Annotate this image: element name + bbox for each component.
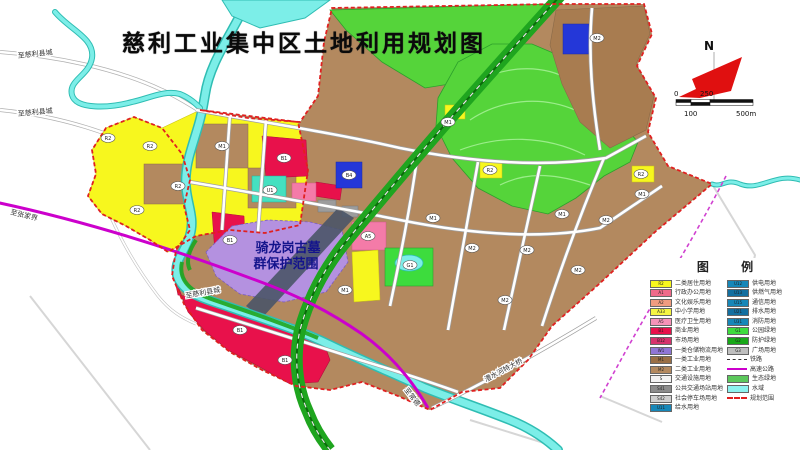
legend-item-left-0: R2二类居住用地: [650, 280, 723, 287]
legend-label: 通信用地: [752, 300, 776, 306]
legend-item-right-10: 生态绿地: [727, 376, 800, 383]
legend-item-left-9: M2二类工业用地: [650, 366, 723, 373]
legend-label: 排水用地: [752, 309, 776, 315]
legend-label: 生态绿地: [752, 376, 776, 382]
legend-item-right-8: 铁路: [727, 357, 800, 364]
parcel-code: M2: [501, 298, 509, 304]
legend-item-left-10: S交通设施用地: [650, 376, 723, 383]
legend-item-right-12: 规划范围: [727, 395, 800, 402]
legend-item-left-11: S41公共交通场站用地: [650, 386, 723, 393]
parcel-code: B1: [281, 156, 288, 162]
parcel-code: M1: [638, 192, 646, 198]
legend-item-left-6: B12市场用地: [650, 338, 723, 345]
legend-item-right-5: G1公园绿地: [727, 328, 800, 335]
legend-swatch: [727, 359, 747, 362]
legend-swatch: B12: [650, 337, 672, 345]
legend-item-right-3: U21排水用地: [727, 309, 800, 316]
legend-swatch: U12: [727, 280, 749, 288]
legend-swatch: [727, 375, 749, 383]
legend-swatch: U11: [650, 404, 672, 412]
legend-item-left-12: S42社会停车场用地: [650, 395, 723, 402]
legend-label: 社会停车场用地: [675, 396, 717, 402]
legend-item-right-4: U31消防用地: [727, 318, 800, 325]
legend-item-left-3: A33中小学用地: [650, 309, 723, 316]
legend-swatch: [727, 385, 749, 393]
legend-label: 交通设施用地: [675, 376, 711, 382]
legend-swatch: S42: [650, 395, 672, 403]
legend-label: 铁路: [750, 357, 762, 363]
legend-swatch: A33: [650, 308, 672, 316]
legend-title: 图 例: [650, 258, 800, 275]
parcel-code: R2: [487, 168, 494, 174]
legend-label: 商业用地: [675, 328, 699, 334]
legend-item-left-7: W1一类仓储物流用地: [650, 347, 723, 354]
legend-swatch: A5: [650, 318, 672, 326]
legend-column-left: R2二类居住用地A1行政办公用地A2文化娱乐用地A33中小学用地A5医疗卫生用地…: [650, 280, 723, 412]
parcel-code: M1: [558, 212, 566, 218]
parcel-code: M2: [593, 36, 601, 42]
parcel-code: M2: [523, 248, 531, 254]
legend-column-right: U12供电用地U13供燃气用地U15通信用地U21排水用地U31消防用地G1公园…: [727, 280, 800, 412]
legend-label: 公共交通场站用地: [675, 386, 723, 392]
legend-label: 供燃气用地: [752, 290, 782, 296]
legend-item-left-2: A2文化娱乐用地: [650, 299, 723, 306]
legend-panel: 图 例 R2二类居住用地A1行政办公用地A2文化娱乐用地A33中小学用地A5医疗…: [650, 258, 800, 412]
legend-item-left-8: M1一类工业用地: [650, 357, 723, 364]
legend-item-left-5: B1商业用地: [650, 328, 723, 335]
legend-label: 二类工业用地: [675, 367, 711, 373]
legend-swatch: S41: [650, 385, 672, 393]
protection-label-line2: 群保护范围: [253, 256, 318, 272]
protection-label-line1: 骑龙岗古墓: [255, 240, 321, 256]
legend-label: 广场用地: [752, 348, 776, 354]
legend-swatch: B1: [650, 327, 672, 335]
legend-swatch: G2: [727, 337, 749, 345]
legend-label: 市场用地: [675, 338, 699, 344]
parcel-code: U1: [267, 188, 274, 194]
legend-item-right-1: U13供燃气用地: [727, 290, 800, 297]
parcel-code: M1: [444, 120, 452, 126]
scale-100: 100: [684, 110, 697, 118]
parcel-code: B1: [282, 358, 289, 364]
legend-label: 医疗卫生用地: [675, 319, 711, 325]
legend-label: 规划范围: [750, 396, 774, 402]
parcel-code: M1: [341, 288, 349, 294]
legend-swatch: U31: [727, 318, 749, 326]
parcel-code: R2: [147, 144, 154, 150]
legend-item-right-2: U15通信用地: [727, 299, 800, 306]
legend-label: 防护绿地: [752, 338, 776, 344]
legend-item-right-9: 高速公路: [727, 366, 800, 373]
legend-label: 一类仓储物流用地: [675, 348, 723, 354]
parcel-code: R2: [175, 184, 182, 190]
legend-label: 公园绿地: [752, 328, 776, 334]
legend-label: 中小学用地: [675, 309, 705, 315]
parcel-code: M1: [218, 144, 226, 150]
legend-swatch: R2: [650, 280, 672, 288]
parcel-code: R2: [638, 172, 645, 178]
legend-item-right-11: 水域: [727, 386, 800, 393]
parcel-code: R2: [134, 208, 141, 214]
parcel-code: M2: [468, 246, 476, 252]
legend-item-left-13: U11给水用地: [650, 405, 723, 412]
parcel-code: B4: [346, 173, 353, 179]
page-title: 慈利工业集中区土地利用规划图: [122, 24, 522, 58]
legend-swatch: [727, 397, 747, 401]
north-label: N: [704, 39, 714, 53]
parcel-code: G1: [406, 263, 413, 269]
parcel-code: A5: [365, 234, 372, 240]
legend-swatch: S: [650, 375, 672, 383]
legend-swatch: A2: [650, 299, 672, 307]
legend-label: 水域: [752, 386, 764, 392]
legend-swatch: U13: [727, 289, 749, 297]
legend-swatch: [727, 368, 747, 372]
legend-swatch: G3: [727, 347, 749, 355]
legend-label: 行政办公用地: [675, 290, 711, 296]
legend-label: 文化娱乐用地: [675, 300, 711, 306]
planning-map-page: R2R2R2M1R2U1B1B1B4A5G1M1M2M2M1M2M1M2M1R2…: [0, 0, 800, 450]
legend-item-right-6: G2防护绿地: [727, 338, 800, 345]
legend-label: 消防用地: [752, 319, 776, 325]
legend-label: 二类居住用地: [675, 281, 711, 287]
scale-250: 250: [700, 90, 713, 98]
scale-0: 0: [674, 90, 678, 98]
legend-label: 一类工业用地: [675, 357, 711, 363]
parcel-code: M2: [574, 268, 582, 274]
parcel-code: B1: [237, 328, 244, 334]
legend-label: 给水用地: [675, 405, 699, 411]
parcel-code: R2: [105, 136, 112, 142]
legend-item-left-1: A1行政办公用地: [650, 290, 723, 297]
legend-label: 高速公路: [750, 367, 774, 373]
parcel-code: M2: [602, 218, 610, 224]
legend-swatch: W1: [650, 347, 672, 355]
parcel-code: M1: [429, 216, 437, 222]
parcel-code: B1: [227, 238, 234, 244]
legend-swatch: U15: [727, 299, 749, 307]
legend-swatch: A1: [650, 289, 672, 297]
legend-item-right-7: G3广场用地: [727, 347, 800, 354]
legend-swatch: M2: [650, 366, 672, 374]
blue-parcel-north: [563, 24, 589, 54]
legend-swatch: G1: [727, 327, 749, 335]
scale-500m: 500m: [736, 110, 756, 118]
legend-item-left-4: A5医疗卫生用地: [650, 318, 723, 325]
legend-swatch: M1: [650, 356, 672, 364]
legend-label: 供电用地: [752, 281, 776, 287]
legend-swatch: U21: [727, 308, 749, 316]
legend-columns: R2二类居住用地A1行政办公用地A2文化娱乐用地A33中小学用地A5医疗卫生用地…: [650, 280, 800, 412]
legend-item-right-0: U12供电用地: [727, 280, 800, 287]
